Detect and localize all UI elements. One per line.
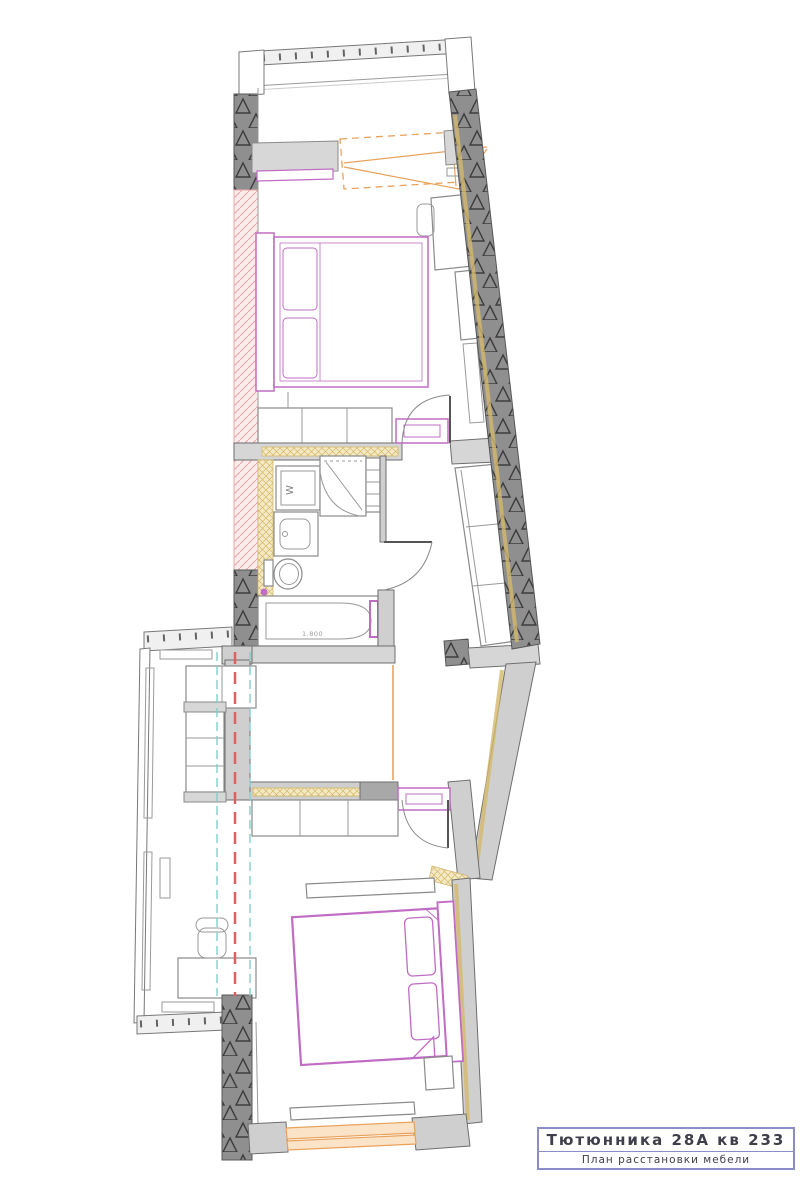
- living-window-band-bottom: [137, 1012, 226, 1034]
- title-address: Тютюнника 28А кв 233: [539, 1129, 793, 1152]
- living-sill-bottom: [162, 1002, 214, 1012]
- bedroom-2: [222, 800, 482, 1160]
- living-sill-top: [160, 650, 212, 659]
- nightstand: [424, 1056, 454, 1090]
- floor-plan-document: W 1.800: [0, 0, 810, 1200]
- bedroom2-wall-left-edge: [256, 1022, 258, 1124]
- bed2-mattress: [292, 908, 447, 1065]
- bathroom: W 1.800: [234, 456, 432, 663]
- bedroom2-wall-left-dark: [222, 995, 252, 1160]
- bed1-headboard: [256, 233, 274, 391]
- floor-plan-svg: W 1.800: [0, 0, 810, 1200]
- bedroom2-wardrobe-row: [252, 800, 398, 836]
- window-pier-left: [248, 1122, 288, 1154]
- corridor-pier-dark: [444, 639, 470, 666]
- living-room: [134, 627, 256, 1034]
- window-pier-right: [412, 1114, 470, 1150]
- window-shelf-bottom: [290, 1102, 415, 1120]
- corner-pier-left: [239, 50, 264, 96]
- bathroom-rack: [366, 458, 380, 512]
- bed1-mattress: [274, 237, 428, 387]
- sofa-armrest-bottom: [184, 792, 226, 802]
- bedroom2-wall-top-pier: [360, 782, 398, 800]
- living-window-band-top: [144, 627, 232, 651]
- sofa-armrest-top: [184, 702, 226, 712]
- wall-bathroom-bottom: [234, 646, 395, 663]
- wall-bedroom1-bottom-hatch: [262, 447, 398, 456]
- washing-machine-label: W: [285, 485, 296, 495]
- living-sill-small: [160, 858, 170, 898]
- corner-pier-right: [445, 37, 475, 94]
- wall-bathroom-right-lower: [378, 590, 394, 648]
- toilet-tank: [264, 560, 273, 586]
- shower-tray: [320, 456, 366, 516]
- faucet-symbol-1: [261, 589, 268, 596]
- bed2-group: [292, 901, 463, 1071]
- title-block: Тютюнника 28А кв 233 План расстановки ме…: [537, 1127, 795, 1170]
- title-subtitle: План расстановки мебели: [539, 1152, 793, 1168]
- bed2-headboard-shelf: [306, 878, 435, 898]
- shelf-magenta: [257, 169, 333, 181]
- window-band-top: [243, 39, 461, 66]
- corner-wall-slant: [448, 780, 480, 880]
- kitchen-dining: [250, 662, 536, 890]
- cabinet-row-bottom: [258, 408, 392, 446]
- door-bathroom-swing: [384, 542, 432, 590]
- washing-machine: [276, 466, 320, 510]
- wall-left-insulation: [234, 190, 258, 570]
- wall-left-top: [234, 94, 258, 190]
- cabinet-top: [252, 141, 338, 173]
- sofa-body: [186, 708, 224, 792]
- bathtub-dimension: 1.800: [302, 630, 323, 638]
- wall-left-bottom: [234, 570, 258, 656]
- wall-bathroom-right-upper: [380, 456, 386, 542]
- bedroom2-wall-top-hatch: [253, 788, 361, 796]
